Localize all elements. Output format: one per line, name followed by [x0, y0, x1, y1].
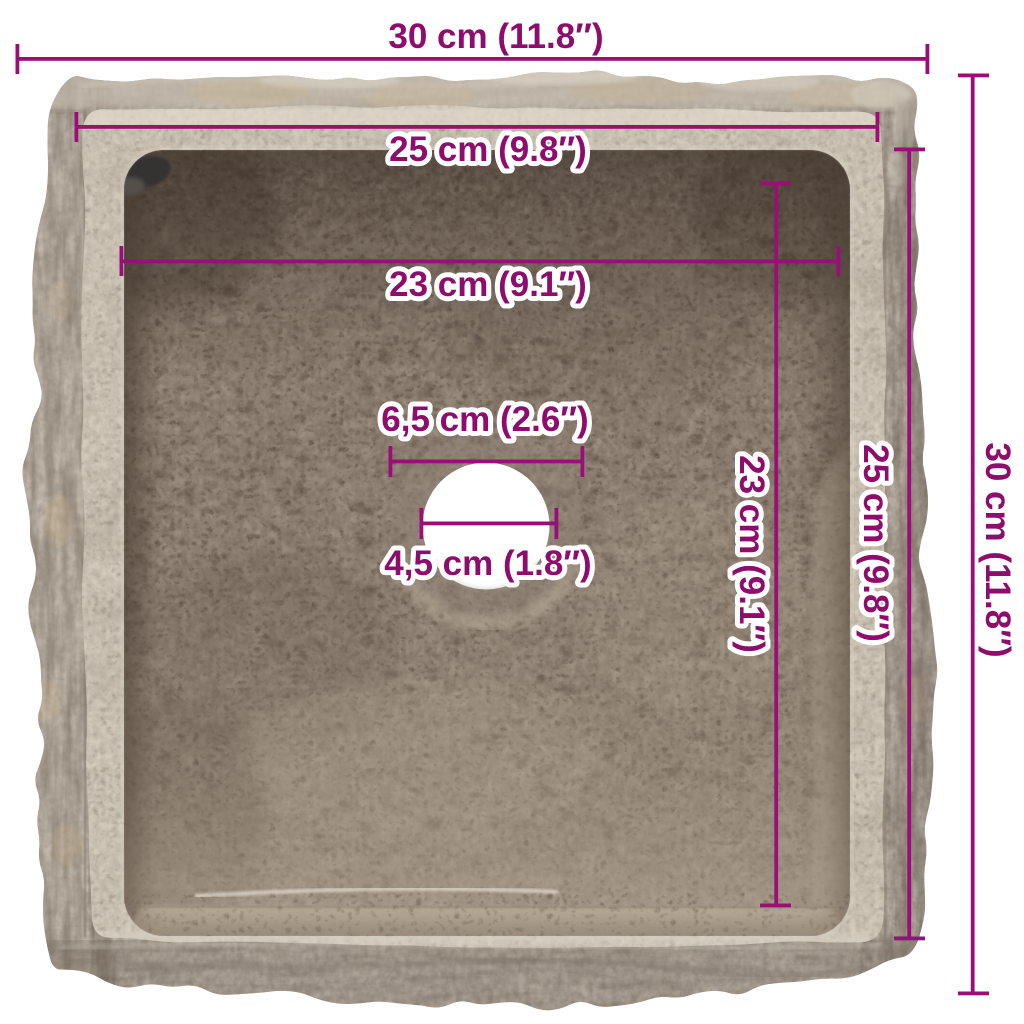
svg-text:23 cm (9.1″): 23 cm (9.1″) [732, 455, 771, 653]
svg-text:23 cm (9.1″): 23 cm (9.1″) [389, 265, 587, 304]
svg-text:6,5 cm (2.6″): 6,5 cm (2.6″) [381, 400, 588, 439]
svg-text:4,5 cm (1.8″): 4,5 cm (1.8″) [384, 544, 591, 583]
svg-text:30 cm (11.8″): 30 cm (11.8″) [978, 442, 1017, 657]
svg-text:30 cm (11.8″): 30 cm (11.8″) [388, 17, 603, 56]
svg-text:25 cm (9.8″): 25 cm (9.8″) [856, 444, 895, 642]
svg-text:25 cm (9.8″): 25 cm (9.8″) [389, 130, 587, 169]
